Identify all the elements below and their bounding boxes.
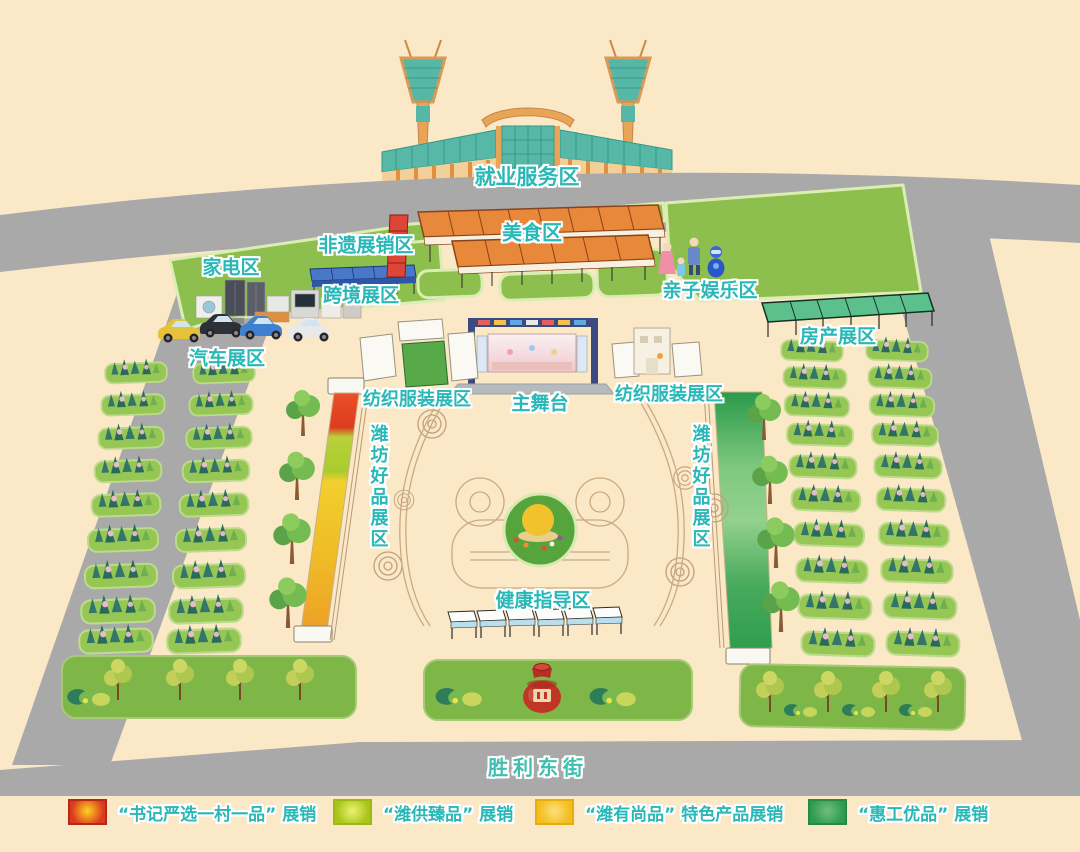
strip-right-gradient	[704, 392, 772, 664]
legend-label: “书记严选一村一品” 展销	[118, 800, 316, 825]
venue-map: 就业服务区 非遗展销区 美食区 家电区 跨境展区 亲子娱乐区 汽车展区 房产展区…	[0, 0, 1080, 852]
legend-swatch-yellow	[535, 799, 574, 825]
legend-item-village-select: “书记严选一村一品” 展销	[68, 799, 316, 825]
area-label-food: 美食区	[502, 217, 562, 246]
legend-swatch-green	[808, 799, 847, 825]
area-label-textile-left: 纺织服装展区	[363, 385, 471, 411]
street-label: 胜利东街	[488, 752, 588, 781]
legend-item-weigong-zhenpin: “潍供臻品” 展销	[333, 799, 513, 825]
area-label-weifang-right: 潍坊好品展区	[690, 424, 709, 550]
legend-label: “潍有尚品” 特色产品展销	[585, 800, 783, 825]
area-label-crossborder: 跨境展区	[323, 281, 399, 308]
bottom-greenery	[62, 656, 966, 730]
strip-left-gradient	[294, 378, 368, 642]
area-label-employment: 就业服务区	[475, 161, 580, 191]
area-label-auto: 汽车展区	[189, 344, 265, 371]
legend-label: “惠工优品” 展销	[858, 800, 988, 825]
legend: “书记严选一村一品” 展销 “潍供臻品” 展销 “潍有尚品” 特色产品展销 “惠…	[0, 799, 1080, 841]
area-label-health: 健康指导区	[495, 586, 590, 613]
area-label-family: 亲子娱乐区	[662, 276, 757, 303]
area-label-textile-right: 纺织服装展区	[615, 380, 723, 406]
area-label-feiyi: 非遗展销区	[318, 231, 413, 258]
area-label-appliance: 家电区	[202, 253, 259, 280]
textile-booths-right	[612, 328, 702, 378]
area-label-weifang-left: 潍坊好品展区	[368, 424, 387, 550]
area-label-realestate: 房产展区	[800, 322, 876, 349]
legend-swatch-yellowgreen	[333, 799, 372, 825]
legend-item-weiyou-shangpin: “潍有尚品” 特色产品展销	[535, 799, 783, 825]
legend-swatch-red	[68, 799, 107, 825]
map-artwork	[0, 0, 1080, 852]
textile-booths-left	[360, 319, 478, 387]
legend-label: “潍供臻品” 展销	[383, 800, 513, 825]
legend-item-huigong-youpin: “惠工优品” 展销	[808, 799, 988, 825]
area-label-main-stage: 主舞台	[511, 389, 568, 416]
